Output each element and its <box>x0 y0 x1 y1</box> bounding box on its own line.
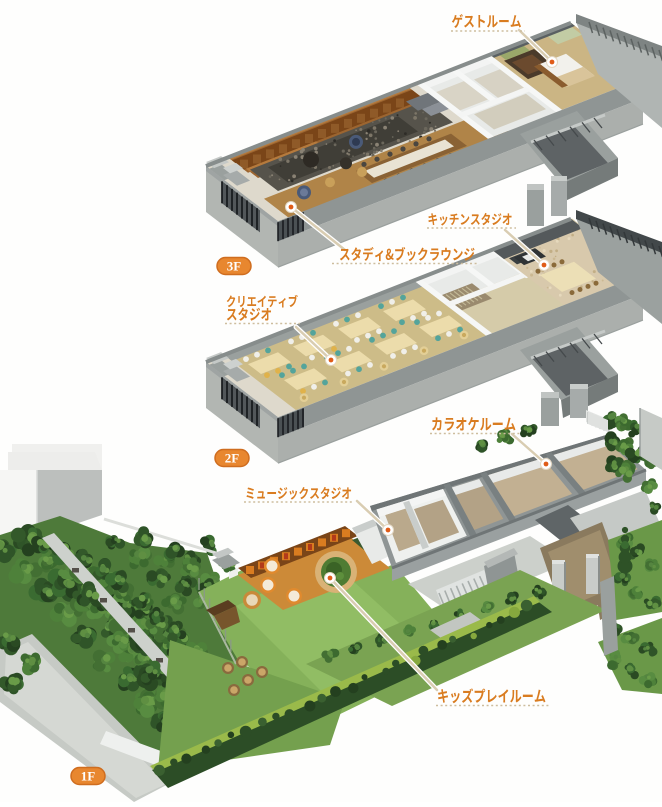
svg-text:3F: 3F <box>227 259 242 274</box>
svg-text:1F: 1F <box>81 769 96 784</box>
svg-text:2F: 2F <box>225 451 240 466</box>
